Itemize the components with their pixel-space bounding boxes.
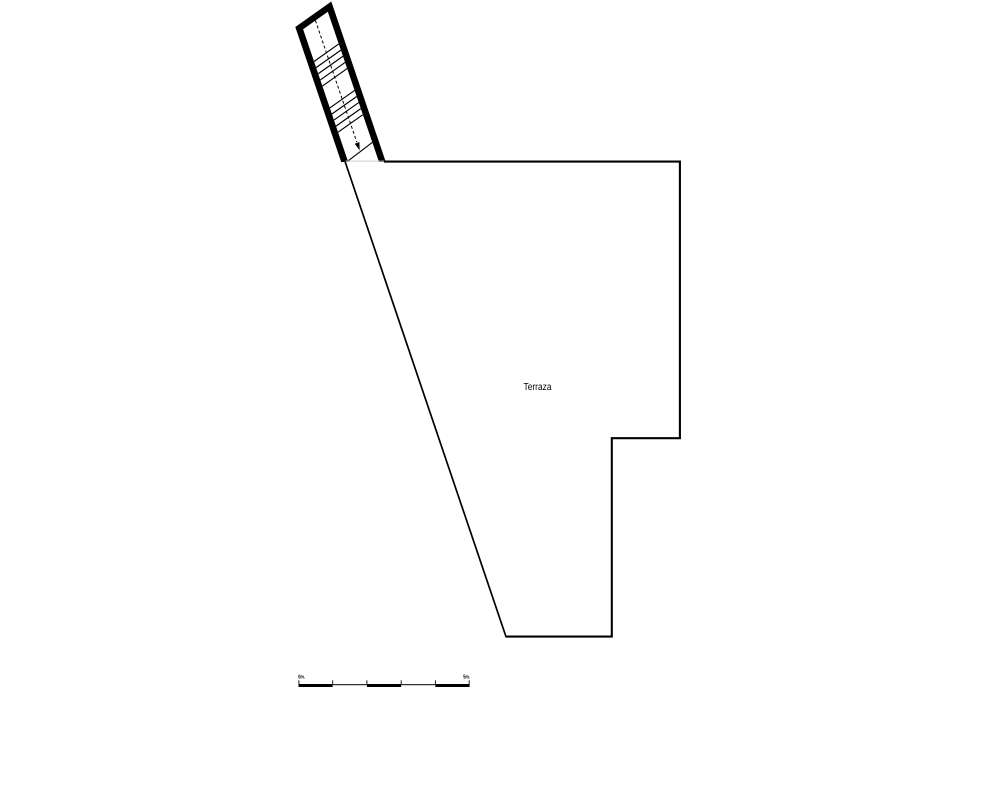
svg-text:5m.: 5m. [463,674,470,680]
svg-text:0m.: 0m. [298,674,305,680]
svg-text:Terraza: Terraza [524,382,552,393]
